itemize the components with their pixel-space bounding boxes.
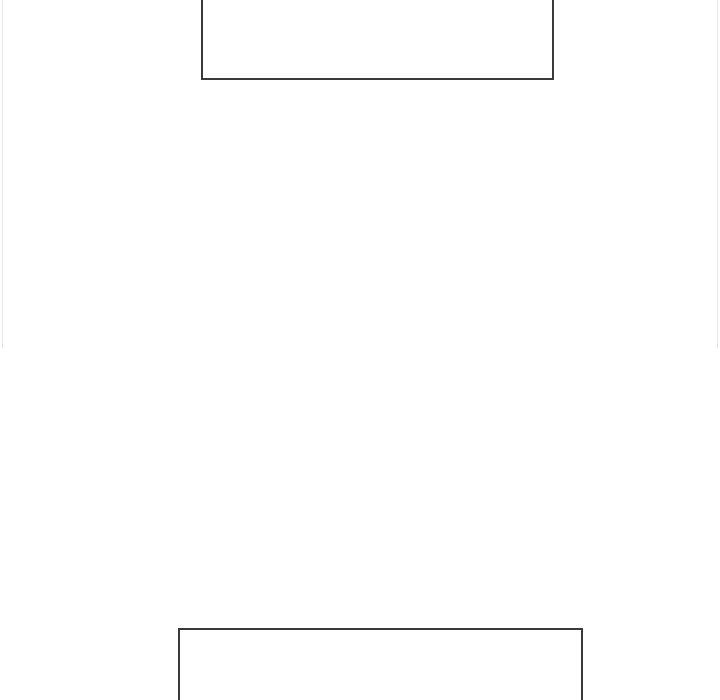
page-left-edge-line bbox=[2, 0, 3, 348]
page-right-edge-line bbox=[717, 0, 718, 348]
bottom-text-box[interactable] bbox=[178, 628, 583, 700]
top-text-box[interactable] bbox=[201, 0, 554, 80]
